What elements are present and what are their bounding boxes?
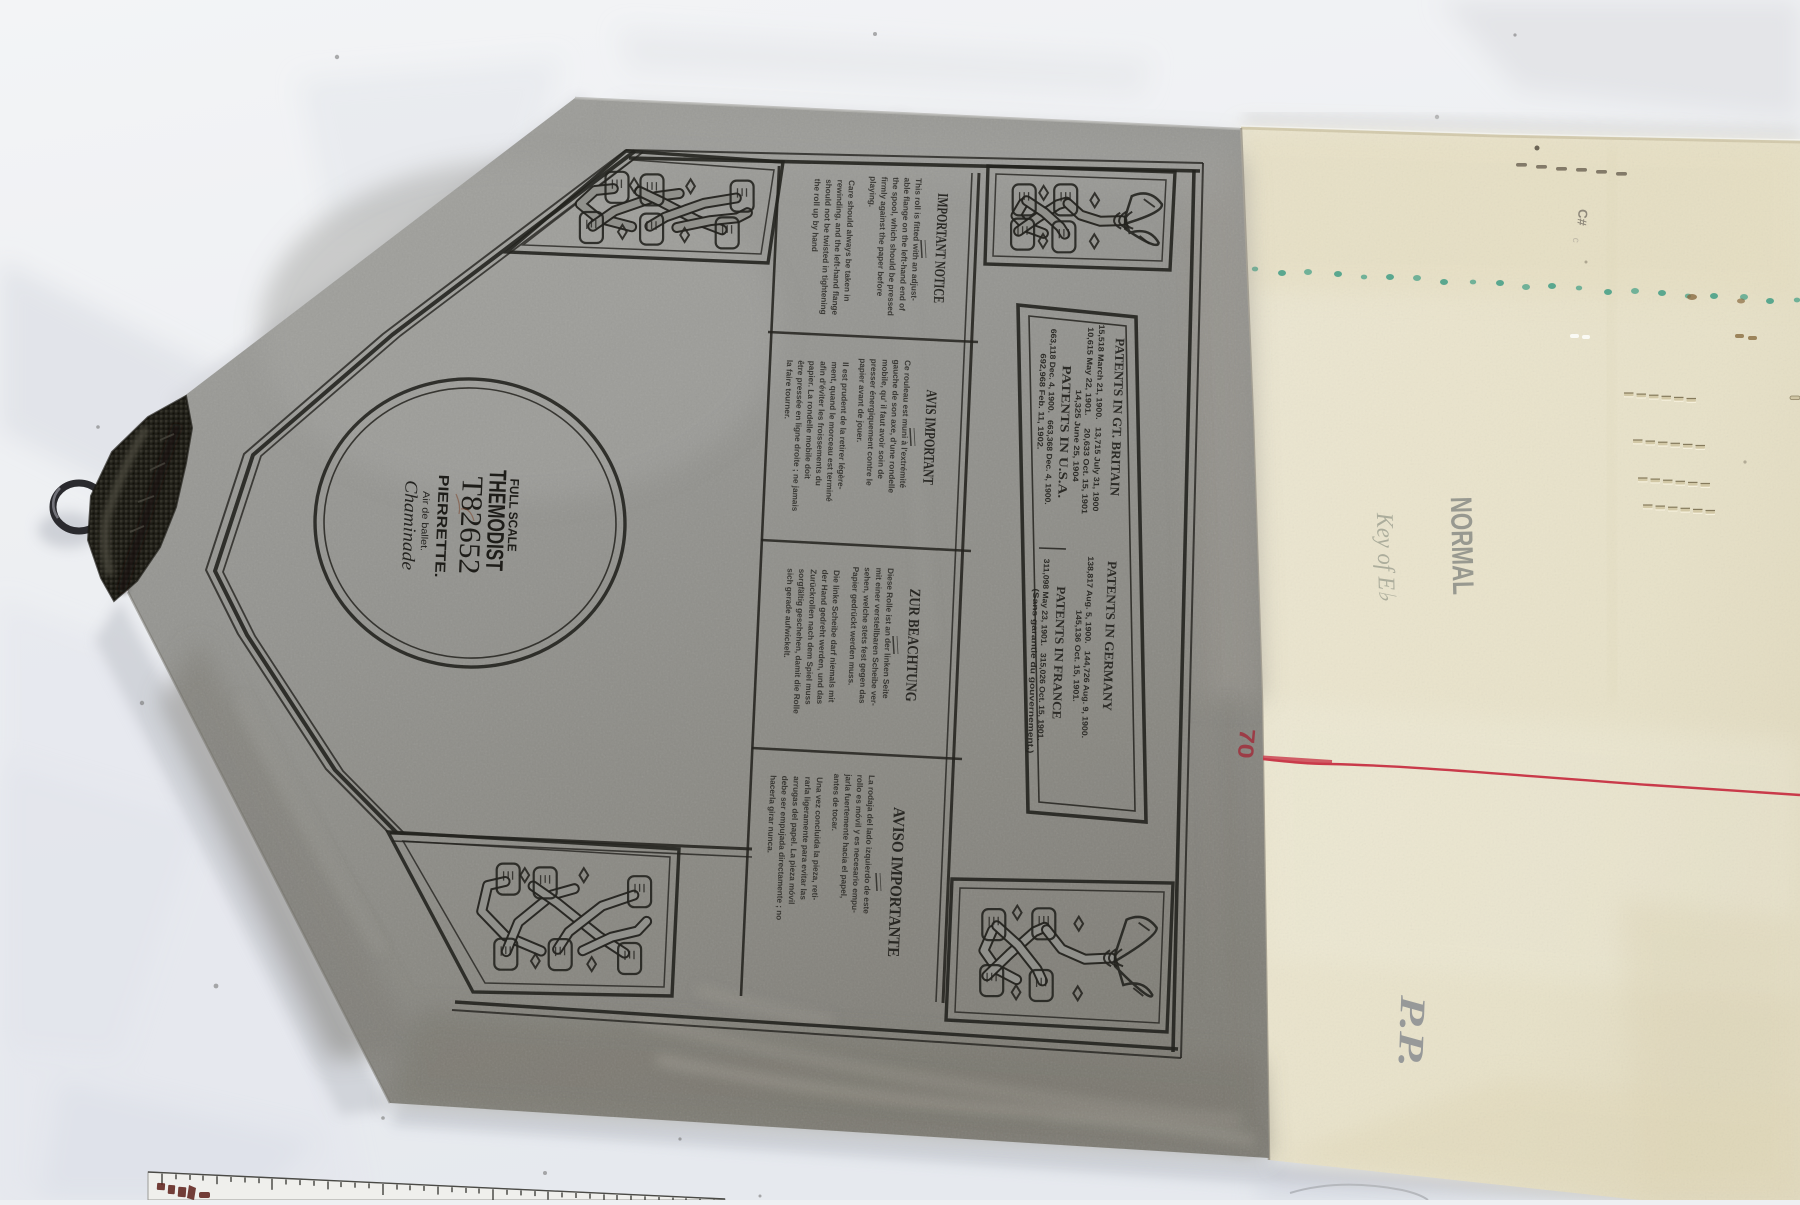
svg-text:playing.: playing. (867, 176, 877, 207)
svg-text:C#: C# (1574, 208, 1590, 227)
svg-text:70: 70 (1233, 728, 1261, 760)
svg-text:Key of E♭: Key of E♭ (1371, 512, 1399, 602)
svg-text:Chaminade: Chaminade (398, 480, 422, 571)
svg-text:T82652: T82652 (452, 476, 489, 575)
svg-text:c: c (1570, 237, 1581, 243)
svg-text:NORMAL: NORMAL (1444, 496, 1480, 595)
svg-text:P.P.: P.P. (1391, 993, 1434, 1068)
